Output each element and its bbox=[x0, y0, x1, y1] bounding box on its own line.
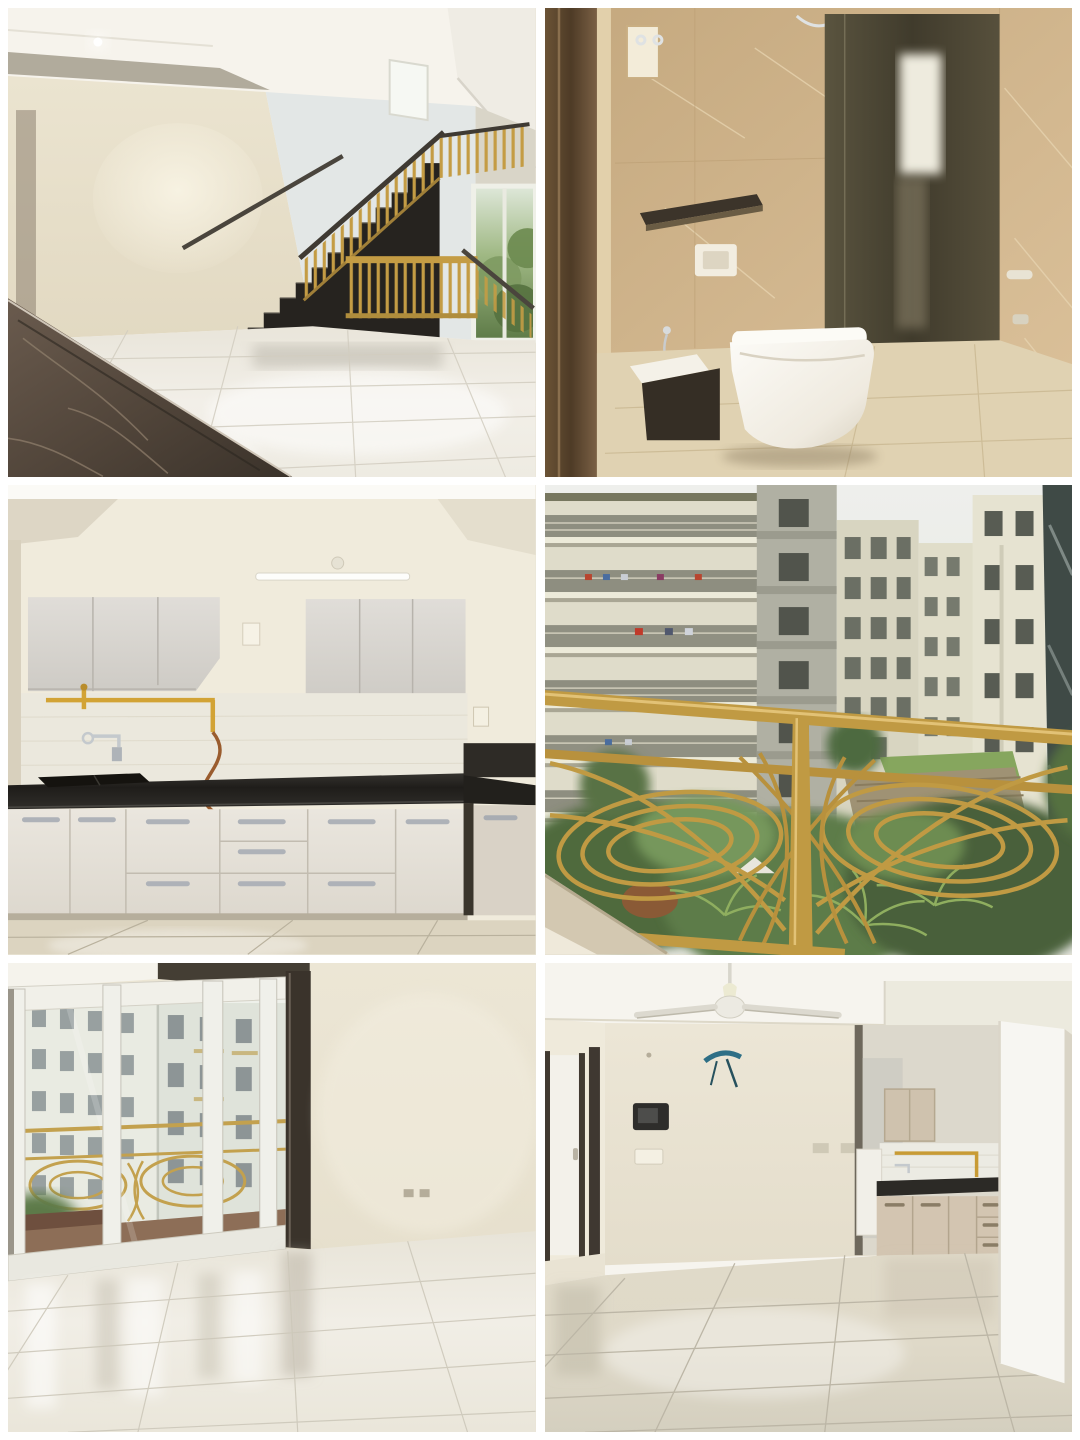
lower-cabinets bbox=[8, 810, 468, 916]
photo-living-hall-staircase bbox=[8, 8, 536, 477]
sliding-door-room-scene bbox=[8, 963, 536, 1432]
living-hall-scene bbox=[8, 8, 536, 477]
raised-splash bbox=[464, 744, 536, 778]
jamb-shadow bbox=[8, 989, 14, 1275]
column-side-shade bbox=[1064, 1029, 1072, 1383]
light-junction-box bbox=[332, 557, 344, 569]
window-reflection bbox=[899, 54, 941, 174]
white-column bbox=[999, 1021, 1072, 1383]
gate-top-rail bbox=[346, 256, 478, 263]
ceiling-strip bbox=[8, 485, 536, 499]
door-jamb bbox=[545, 8, 597, 477]
photo-room-sliding-door bbox=[8, 963, 536, 1432]
photo-collage bbox=[0, 0, 1080, 1440]
kitchen-scene bbox=[8, 485, 536, 954]
tube-light bbox=[256, 573, 410, 580]
door-frame-right bbox=[578, 1053, 584, 1258]
vdp-screen bbox=[637, 1108, 657, 1123]
bathroom-scene bbox=[545, 8, 1073, 477]
upper-cabinet-right bbox=[306, 599, 466, 701]
ventilator-window bbox=[626, 26, 658, 78]
photo-kitchen bbox=[8, 485, 536, 954]
glass-streak bbox=[896, 178, 926, 328]
wall-recess bbox=[16, 110, 36, 315]
return-cabinet bbox=[474, 806, 536, 916]
return-handle bbox=[484, 816, 518, 821]
switch-plate bbox=[243, 623, 260, 645]
photo-living-dining-kitchen bbox=[545, 963, 1073, 1432]
outlet bbox=[474, 707, 489, 726]
wall-light-wash bbox=[93, 123, 263, 273]
upper-cabinet-left bbox=[28, 597, 220, 691]
glass-view bbox=[8, 993, 286, 1257]
balcony-view-scene bbox=[545, 485, 1073, 954]
center-post bbox=[788, 717, 812, 954]
second-door-frame bbox=[588, 1047, 599, 1265]
kickboard-shadow bbox=[8, 914, 468, 921]
door-frame-left bbox=[545, 1051, 550, 1261]
downlight bbox=[93, 38, 102, 47]
door-stopper bbox=[1012, 314, 1028, 324]
photo-balcony-view bbox=[545, 485, 1073, 954]
building-left bbox=[545, 493, 760, 838]
switch-plate bbox=[634, 1149, 662, 1164]
photo-bathroom bbox=[545, 8, 1073, 477]
return-side bbox=[464, 804, 474, 916]
shower-door-handle bbox=[1006, 270, 1032, 279]
kitchen-backsplash bbox=[879, 1143, 1004, 1181]
toilet-shadow bbox=[721, 445, 877, 467]
gold-balusters-gate bbox=[346, 260, 478, 318]
door-handle bbox=[572, 1148, 577, 1160]
open-kitchen bbox=[854, 1025, 1004, 1256]
living-dining-scene bbox=[545, 963, 1073, 1432]
left-wall-edge bbox=[8, 540, 21, 790]
hallway bbox=[545, 1047, 605, 1285]
stairwell-window-upper bbox=[390, 60, 428, 120]
flush-buttons bbox=[702, 251, 728, 269]
gate-bottom-rail bbox=[346, 313, 478, 318]
